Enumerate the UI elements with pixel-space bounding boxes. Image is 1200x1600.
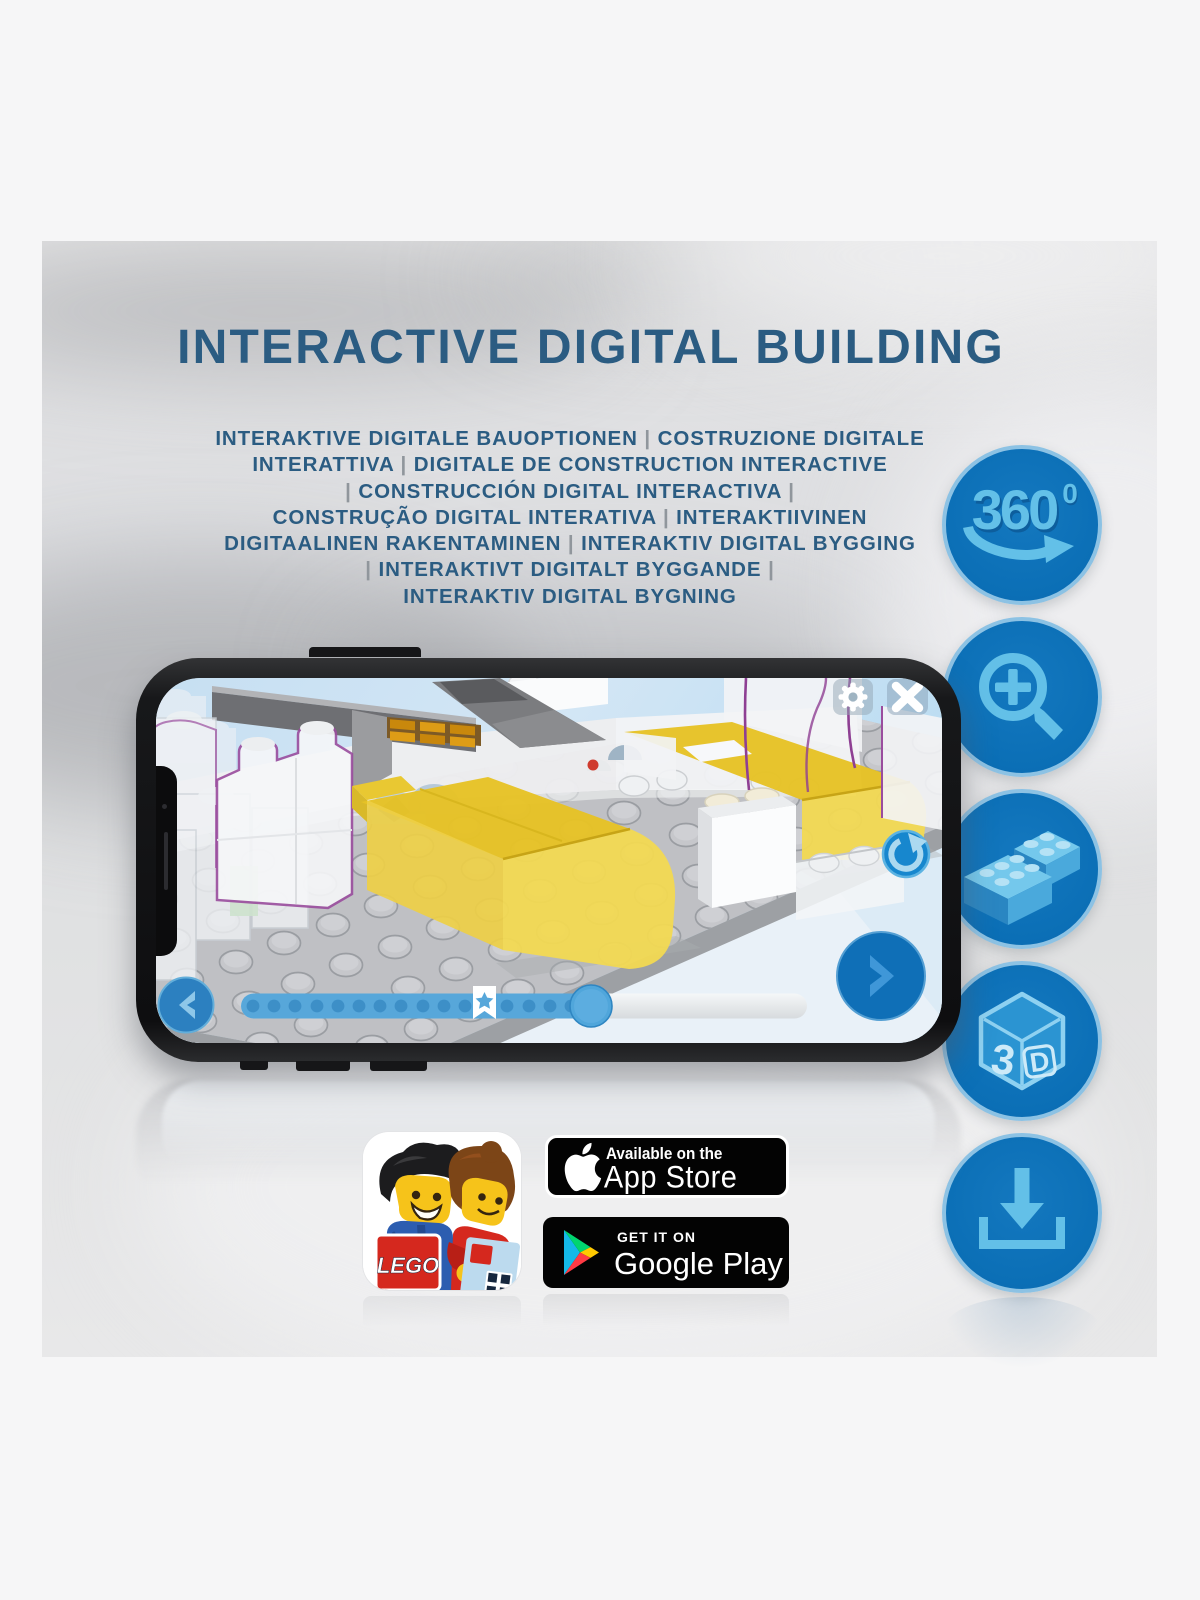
svg-text:0: 0 bbox=[1062, 478, 1078, 509]
svg-text:D: D bbox=[1028, 1046, 1051, 1078]
svg-text:App Store: App Store bbox=[604, 1160, 737, 1194]
svg-text:Google Play: Google Play bbox=[614, 1246, 783, 1281]
svg-text:LEGO: LEGO bbox=[377, 1253, 439, 1278]
svg-text:360: 360 bbox=[972, 478, 1057, 541]
svg-text:GET IT ON: GET IT ON bbox=[617, 1229, 696, 1245]
